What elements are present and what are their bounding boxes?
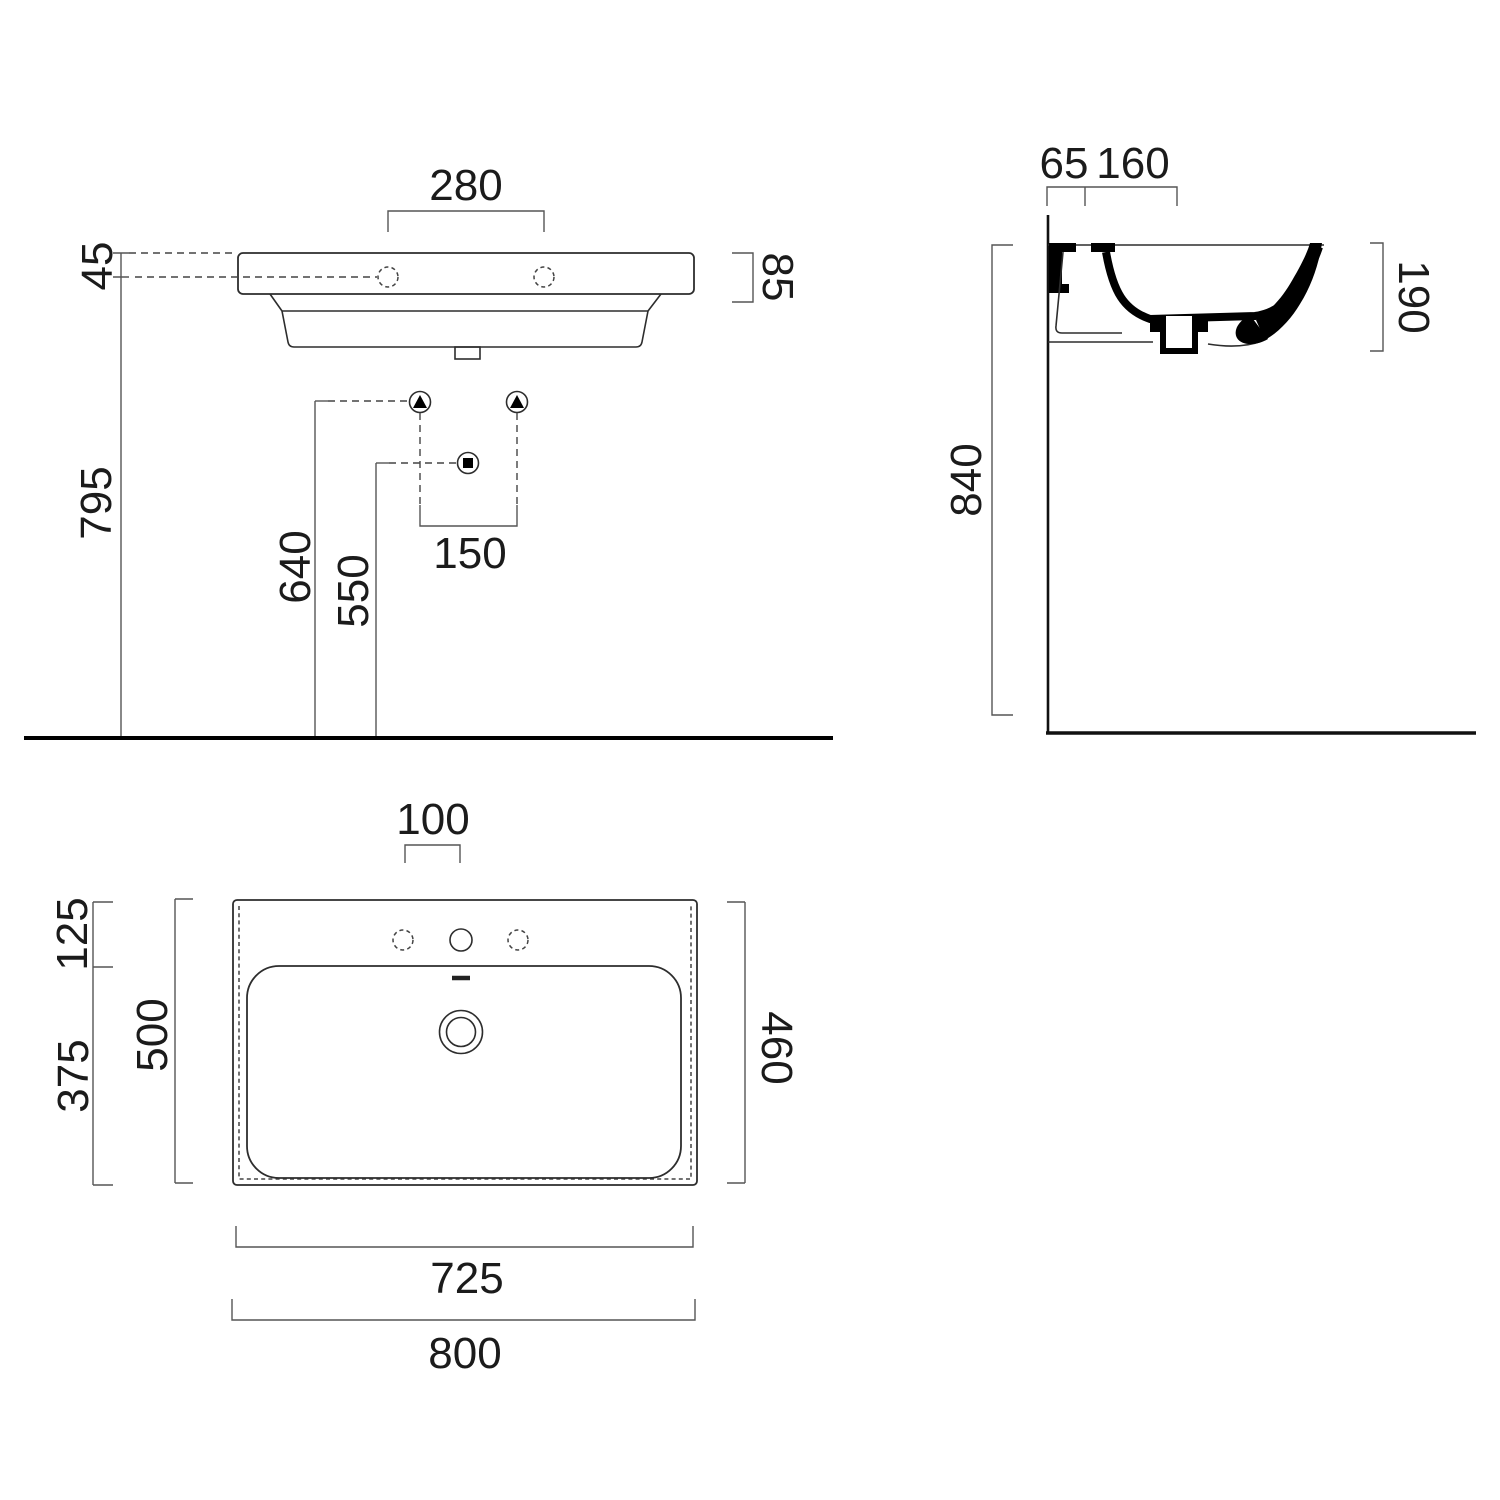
front-hole-right [534, 267, 554, 287]
front-basin-apron [282, 311, 648, 347]
dim-500-label: 500 [128, 998, 177, 1071]
dim-160-label: 160 [1096, 139, 1169, 188]
dim-65-label: 65 [1040, 139, 1089, 188]
dim-85-bracket [732, 253, 753, 302]
triangle-icon [413, 395, 427, 408]
dim-500-bracket [175, 899, 193, 1183]
front-basin-step [270, 294, 661, 311]
dim-45-label: 45 [73, 242, 122, 291]
plan-hole-right [508, 930, 528, 950]
front-hole-left [378, 267, 398, 287]
dim-460-bracket [727, 902, 745, 1183]
plan-drain-inner [447, 1018, 476, 1047]
dim-800-label: 800 [428, 1329, 501, 1378]
dim-840-bracket [992, 245, 1013, 715]
dim-150-bracket [420, 505, 517, 526]
dim-460-label: 460 [752, 1011, 801, 1084]
supply-symbol-left [410, 392, 431, 413]
dim-100-label: 100 [396, 795, 469, 844]
plan-hidden-edge [239, 906, 691, 1179]
square-icon [463, 458, 473, 468]
dim-795-label: 795 [72, 466, 121, 539]
dim-65-160-bracket [1047, 187, 1177, 206]
plan-outer-rect [233, 900, 697, 1185]
front-view: 280 45 85 795 640 550 [24, 161, 833, 738]
supply-symbol-right [507, 392, 528, 413]
drain-symbol [458, 453, 479, 474]
dim-280-label: 280 [429, 161, 502, 210]
dim-725-label: 725 [430, 1254, 503, 1303]
section-deck-bar-left [1062, 243, 1076, 252]
technical-drawing-sheet: 280 45 85 795 640 550 [0, 0, 1500, 1500]
dim-85-label: 85 [753, 253, 802, 302]
dim-100-bracket [405, 845, 460, 863]
section-deck-bar-right [1091, 243, 1115, 252]
section-front-rim [1256, 243, 1322, 340]
front-basin-body [238, 253, 694, 294]
plan-hole-center [450, 929, 472, 951]
dim-550-label: 550 [329, 554, 378, 627]
dim-725-bracket [236, 1226, 693, 1247]
side-section-view: 65 160 840 190 [942, 139, 1476, 733]
dim-280-bracket [388, 211, 544, 232]
dim-375-label: 375 [49, 1039, 98, 1112]
section-drain-hollow [1166, 316, 1192, 348]
triangle-icon [510, 395, 524, 408]
washbasin-drawing-svg: 280 45 85 795 640 550 [0, 0, 1500, 1500]
dim-190-label: 190 [1389, 260, 1438, 333]
plan-hole-left [393, 930, 413, 950]
dim-150-label: 150 [433, 529, 506, 578]
dim-125-label: 125 [48, 897, 97, 970]
dim-840-label: 840 [942, 443, 991, 516]
front-drain-stub [455, 347, 480, 359]
dim-190-bracket [1370, 243, 1383, 351]
plan-view: 100 125 375 500 460 725 800 [48, 795, 801, 1378]
plan-bowl-rect [247, 966, 681, 1178]
dim-640-label: 640 [271, 530, 320, 603]
